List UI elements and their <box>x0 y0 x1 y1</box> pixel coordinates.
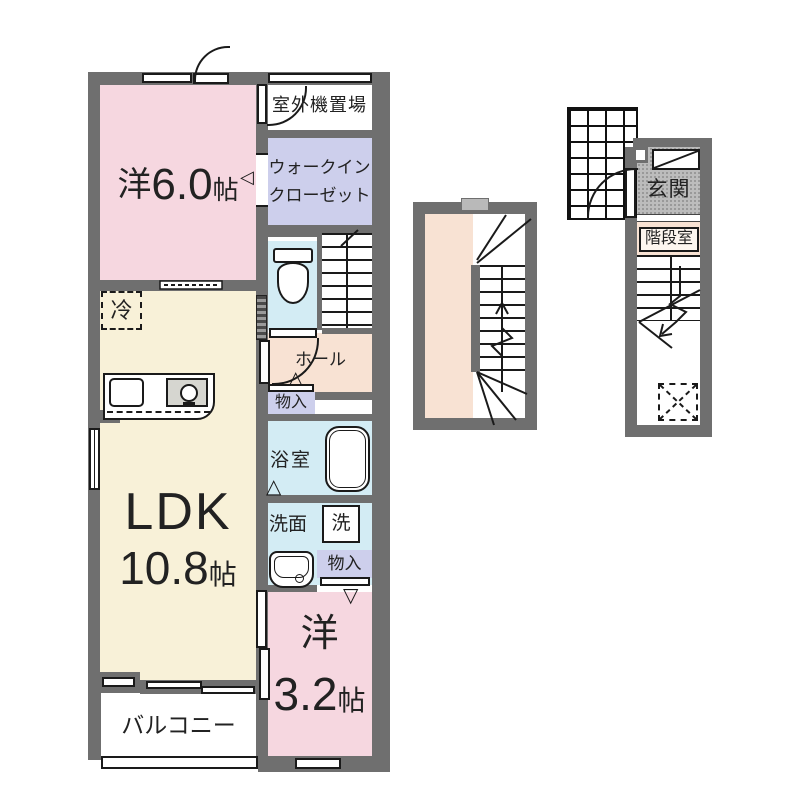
wall-below-outdoor-unit <box>267 130 372 138</box>
bathtub <box>325 426 370 492</box>
hall-storage-door-bar <box>268 384 314 392</box>
entrance-wall-right <box>700 138 712 437</box>
hall-label: ホール <box>295 350 346 370</box>
entrance-step-edge <box>637 214 700 222</box>
wall-hall-lower <box>315 392 372 400</box>
stairwell-treads <box>637 255 700 321</box>
balcony-sliding-window-left <box>146 681 202 689</box>
window-ldk-bottom-left <box>102 677 135 687</box>
door-toilet-leaf <box>269 328 317 338</box>
room-walk-in-closet <box>267 138 372 225</box>
stairblock-top-tab <box>461 198 489 211</box>
sliding-door-ldk-white-leaf <box>259 340 270 384</box>
washbasin-bowl-line <box>274 556 309 578</box>
stairblock-centerline <box>501 265 503 372</box>
stairwell-centerline <box>670 255 672 321</box>
western3-prefix: 洋 <box>267 613 372 657</box>
sliding-door-ldk-dark-leaf <box>256 295 267 340</box>
stairwell-dashed-area <box>658 383 698 421</box>
bath-door-swing-icon: △ <box>266 477 281 497</box>
wall-stairs-hall <box>322 328 372 334</box>
western6-label: 洋6.0帖 <box>100 160 256 211</box>
western6-unit: 帖 <box>213 176 239 206</box>
window-outdoor-unit-top <box>268 73 372 83</box>
hall-side-counter <box>322 400 372 414</box>
fridge-label: 冷 <box>103 293 140 328</box>
ldk-size-value: 10.8 <box>119 542 209 595</box>
wic-label-line1: ウォークイン <box>267 158 372 178</box>
window-ldk-left-midline <box>94 430 95 488</box>
western3-unit: 帖 <box>337 685 365 717</box>
bath-label: 浴室 <box>270 450 312 472</box>
balcony-label: バルコニー <box>101 712 256 738</box>
stairblock-landing <box>425 214 473 418</box>
storage-washroom-label: 物入 <box>317 554 372 574</box>
stairwell-label: 階段室 <box>641 229 697 250</box>
western6-value: 6.0 <box>151 160 212 211</box>
wall-left <box>88 72 100 673</box>
washroom-storage-swing-icon: ▽ <box>343 586 358 606</box>
ldk-size-label: 10.8帖 <box>100 542 256 595</box>
western6-prefix: 洋 <box>117 166 151 205</box>
storage-hall-label: 物入 <box>267 394 315 412</box>
wall-right <box>372 72 390 772</box>
genkan-label: 玄関 <box>637 178 700 202</box>
balcony-sliding-window-right <box>201 686 255 694</box>
door-western6-swing-arc <box>194 46 230 82</box>
stairs-upper-centerline <box>346 233 348 328</box>
door-outdoor-unit-leaf <box>257 84 267 124</box>
shoe-cabinet <box>652 149 700 170</box>
stove-control <box>183 402 195 407</box>
window-western3-bottom <box>295 758 341 769</box>
western3-size-label: 3.2帖 <box>267 668 372 721</box>
western3-value: 3.2 <box>274 668 338 721</box>
kitchen-sink <box>109 378 144 407</box>
washbasin <box>269 551 314 588</box>
fridge-box: 冷 <box>101 291 142 330</box>
stairwell-label-box: 階段室 <box>639 227 699 252</box>
floorplan-canvas: ◁ 冷 △ △ 洗 ▽ 洋6.0帖 室外機置場 <box>0 0 800 800</box>
toilet-tank <box>273 248 313 263</box>
ldk-label: LDK <box>100 483 256 543</box>
kitchen-counter-dashed-edge <box>107 411 210 413</box>
genkan-pillar <box>633 147 648 163</box>
stairblock-inner-wall <box>471 265 480 372</box>
washroom-label: 洗面 <box>269 514 307 536</box>
stove-burner-icon <box>180 384 198 402</box>
wall-western6-ldk <box>100 280 268 291</box>
washer-label: 洗 <box>324 507 358 541</box>
entrance-wall-left-lower <box>625 218 637 437</box>
washer-box: 洗 <box>322 505 360 543</box>
entrance-wall-bottom <box>625 425 712 437</box>
window-western6-top <box>142 73 192 83</box>
ldk-size-unit: 帖 <box>209 559 237 591</box>
wic-label-line2: クローゼット <box>267 186 372 206</box>
sliding-door-western3-leaf-upper <box>256 590 267 648</box>
washbasin-drain-icon <box>295 574 304 583</box>
outdoor-unit-label: 室外機置場 <box>267 95 372 116</box>
balcony-rail <box>101 756 258 769</box>
wall-above-bath <box>256 414 372 421</box>
bathtub-inner-line <box>329 430 366 488</box>
toilet-bowl <box>277 262 309 304</box>
